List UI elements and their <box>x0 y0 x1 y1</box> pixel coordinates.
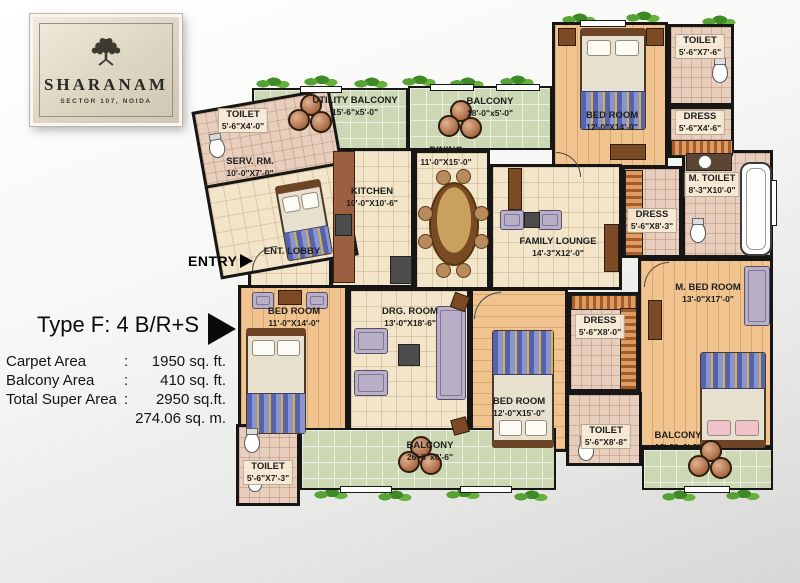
label-dress-top-right: DRESS5'-6"X4'-6" <box>675 110 725 135</box>
label-kitchen: KITCHEN10'-0"X10'-6" <box>346 186 398 209</box>
window <box>460 486 512 493</box>
label-utility-balcony: UTILITY BALCONY15'-6"x5'-0" <box>312 95 397 118</box>
label-toilet-bottom-left: TOILET5'-6"X7'-3" <box>243 460 293 485</box>
logo-title: SHARANAM <box>44 75 168 95</box>
window <box>496 84 540 91</box>
toilet-icon <box>244 432 260 453</box>
toilet-icon <box>690 222 706 243</box>
area-label: Total Super Area <box>6 391 124 408</box>
label-balcony-top: BALCONY18'-0"x5'-0" <box>467 96 514 119</box>
nightstand <box>646 28 664 46</box>
dining-chair <box>436 263 451 278</box>
label-toilet-top-right: TOILET5'-6"X7'-6" <box>675 34 725 59</box>
dresser <box>610 144 646 160</box>
label-balcony-bottom: BALCONY26'-8"x6'-6" <box>407 440 454 463</box>
window <box>684 486 730 493</box>
nightstand <box>558 28 576 46</box>
area-value: 410 sq. ft. <box>134 372 226 389</box>
area-table: Carpet Area : 1950 sq. ft. Balcony Area … <box>6 352 232 428</box>
dining-chair <box>474 234 489 249</box>
label-dress-middle: DRESS5'-6"X8'-0" <box>575 314 625 339</box>
label-master-toilet: M. TOILET8'-3"X10'-0" <box>684 172 739 197</box>
toilet-icon <box>712 62 728 83</box>
entry-marker: ENTRY <box>188 253 253 269</box>
floor-plan-page: SHARANAM SECTOR 107, NOIDA Type F: 4 B/R… <box>0 0 800 583</box>
type-pointer-icon <box>208 313 236 345</box>
area-value: 274.06 sq. m. <box>134 410 226 427</box>
window <box>340 486 392 493</box>
dining-chair <box>418 206 433 221</box>
bed <box>246 328 306 434</box>
area-row-carpet: Carpet Area : 1950 sq. ft. <box>6 352 232 371</box>
stove-icon <box>335 214 352 236</box>
window <box>430 84 474 91</box>
armchair <box>354 370 388 396</box>
lounge-chair <box>538 210 562 230</box>
bed <box>492 330 554 448</box>
label-dining: DINING11'-0"X15'-0" <box>420 145 471 168</box>
logo-subtitle: SECTOR 107, NOIDA <box>60 98 151 105</box>
area-row-balcony: Balcony Area : 410 sq. ft. <box>6 371 232 390</box>
entry-arrow-icon <box>240 254 253 268</box>
lounge-table <box>524 212 540 228</box>
bathtub-icon <box>740 162 772 256</box>
area-label: Carpet Area <box>6 353 124 370</box>
window <box>300 86 342 93</box>
grass-tuft <box>512 489 548 502</box>
console-cabinet <box>604 224 619 272</box>
sofa <box>436 306 466 400</box>
label-toilet-top-left: TOILET5'-6"X4'-0" <box>218 108 268 133</box>
sofa <box>744 266 770 326</box>
logo-plaque: SHARANAM SECTOR 107, NOIDA <box>30 14 182 126</box>
tv-cabinet <box>648 300 662 340</box>
label-balcony-bottom-right: BALCONY13'-9"x6'-6" <box>655 430 702 453</box>
toilet-icon <box>207 136 226 159</box>
dining-table <box>429 182 479 266</box>
coffee-table <box>398 344 420 366</box>
tree-icon <box>84 35 128 73</box>
label-bedroom-top-right: BED ROOM12'-0"X14'-0" <box>586 110 638 133</box>
area-label: Balcony Area <box>6 372 124 389</box>
armchair <box>354 328 388 354</box>
lounge-chair <box>500 210 524 230</box>
area-value: 1950 sq. ft. <box>134 353 226 370</box>
label-family-lounge: FAMILY LOUNGE14'-3"X12'-0" <box>519 236 596 259</box>
label-bedroom-middle: BED ROOM12'-0"X15'-0" <box>493 396 545 419</box>
dining-chair <box>456 169 471 184</box>
area-row-metric: 274.06 sq. m. <box>6 409 232 428</box>
fridge-icon <box>390 256 412 284</box>
console-cabinet <box>508 168 522 210</box>
cabinet <box>278 290 302 305</box>
label-master-bedroom: M. BED ROOM13'-0"X17'-0" <box>675 282 740 305</box>
sink-icon <box>698 155 712 169</box>
label-dress-master: DRESS5'-6"X8'-3" <box>627 208 677 233</box>
label-servant-room: SERV. RM.10'-0"X7'-0" <box>226 156 274 179</box>
area-value: 2950 sq.ft. <box>134 391 226 408</box>
label-ent-lobby: ENT. LOBBY <box>264 246 320 258</box>
dining-chair <box>436 170 451 185</box>
logo-frame: SHARANAM SECTOR 107, NOIDA <box>39 23 173 117</box>
window <box>580 20 626 27</box>
entry-label: ENTRY <box>188 253 237 269</box>
dining-chair <box>418 234 433 249</box>
label-drawing-room: DRG. ROOM13'-0"X18'-6" <box>382 306 438 329</box>
label-bedroom-left: BED ROOM11'-0"X14'-0" <box>268 306 320 329</box>
type-label: Type F: 4 B/R+S <box>34 312 202 338</box>
bed <box>700 352 766 448</box>
area-row-super: Total Super Area : 2950 sq.ft. <box>6 390 232 409</box>
label-toilet-bottom-middle: TOILET5'-6"X8'-8" <box>581 424 631 449</box>
dining-chair <box>456 263 471 278</box>
dining-chair <box>474 206 489 221</box>
